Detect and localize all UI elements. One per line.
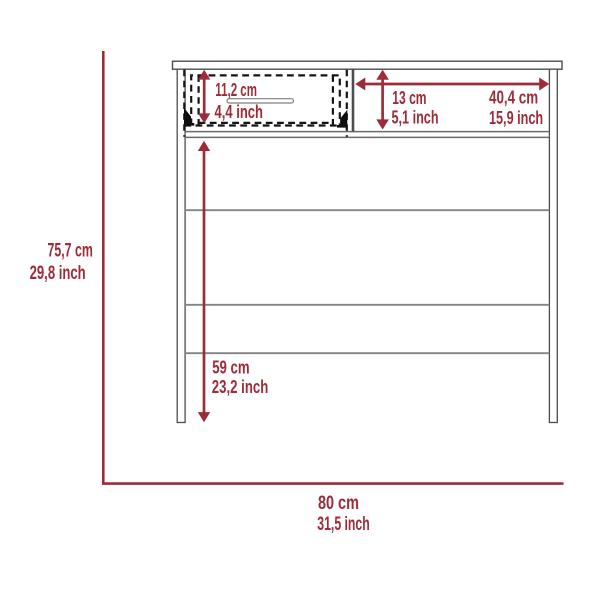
svg-text:15,9 inch: 15,9 inch <box>489 109 543 129</box>
svg-text:23,2 inch: 23,2 inch <box>212 377 269 398</box>
svg-text:13 cm: 13 cm <box>392 89 426 109</box>
svg-text:40,4 cm: 40,4 cm <box>489 87 538 108</box>
svg-text:4,4 inch: 4,4 inch <box>215 102 263 123</box>
svg-text:29,8 inch: 29,8 inch <box>30 263 86 284</box>
svg-text:11,2 cm: 11,2 cm <box>215 80 257 100</box>
svg-text:75,7 cm: 75,7 cm <box>48 240 93 261</box>
svg-text:5,1 inch: 5,1 inch <box>392 108 439 128</box>
svg-text:59 cm: 59 cm <box>212 357 249 378</box>
svg-text:80 cm: 80 cm <box>318 492 359 513</box>
svg-text:31,5 inch: 31,5 inch <box>317 515 369 535</box>
